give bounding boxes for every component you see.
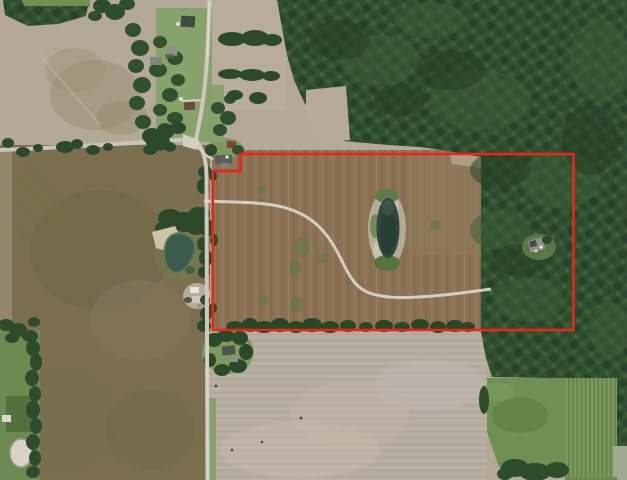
- vineyard-rows: [565, 378, 617, 477]
- parcel-field: [207, 138, 482, 331]
- farmhouse-b: [150, 57, 162, 65]
- satellite-map-viewport[interactable]: [0, 0, 627, 480]
- satellite-map[interactable]: [0, 0, 627, 480]
- forest-clearing-house: [522, 234, 556, 260]
